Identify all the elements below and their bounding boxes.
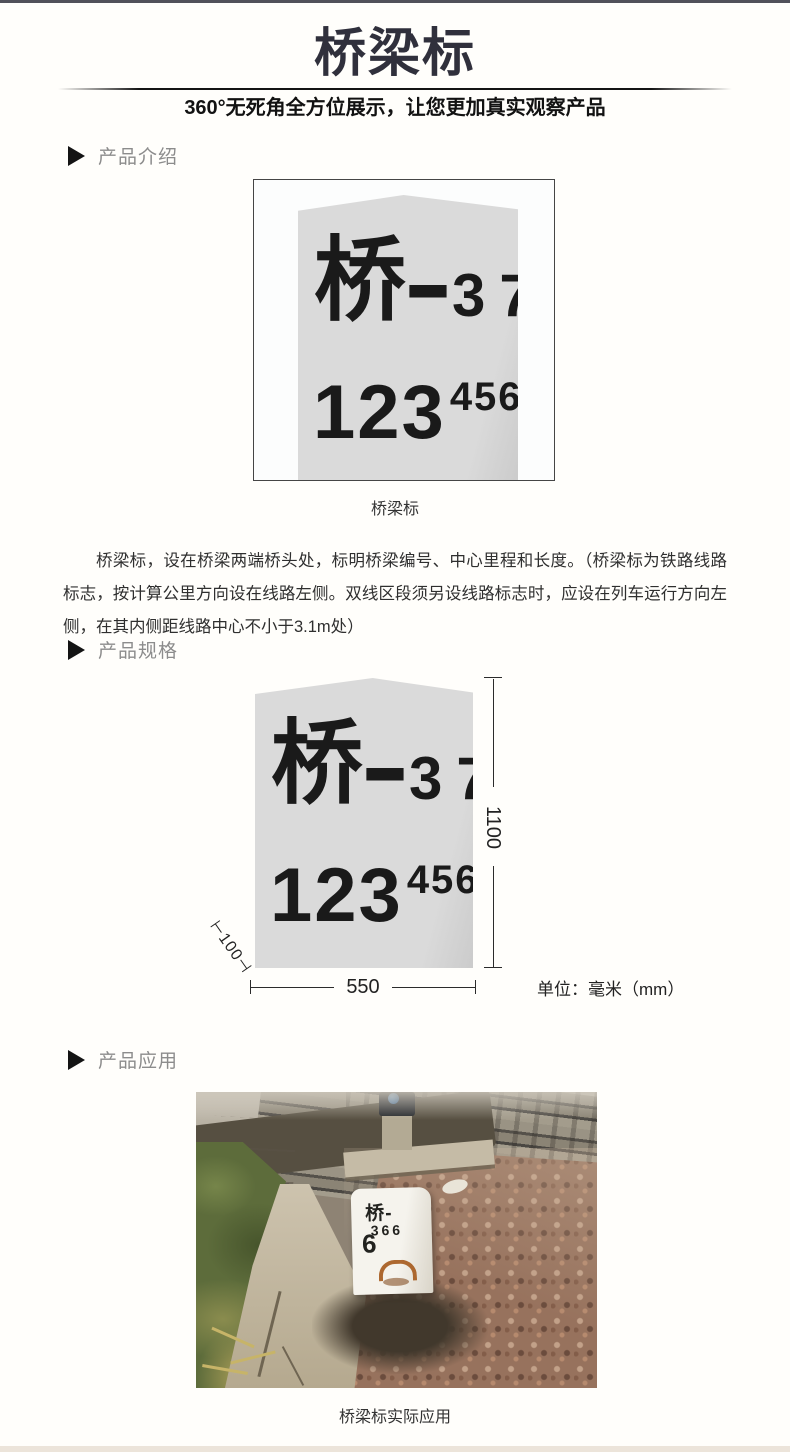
marker-mileage-sup: 456 [407,860,480,900]
triangle-bullet-icon [68,146,85,166]
marker-stone-drawing: 桥—37 123 456 [298,195,518,481]
bottom-edge-strip [0,1446,790,1452]
width-dimension: 550 [250,979,476,995]
application-photo: 桥- 6366 [196,1092,597,1388]
marker-mileage-sup: 456 [450,377,523,417]
section-header-app: 产品应用 [68,1046,178,1073]
width-dim-line-right [392,987,475,988]
triangle-bullet-icon [68,1050,85,1070]
top-edge-strip [0,0,790,3]
diagram-caption: 桥梁标 [0,495,790,519]
marker-face-row2: 123 456 [270,858,480,934]
photo-caption: 桥梁标实际应用 [0,1403,790,1427]
marker-char: 桥 [271,713,363,815]
depth-dim-label: ⊢100⊣ [194,920,268,974]
marker-dash: — [366,703,403,829]
section-label-spec: 产品规格 [98,636,178,663]
height-dim-line-upper [493,679,494,787]
spec-stone-drawing: 桥—37 123 456 [255,678,473,968]
height-dim-line-lower [493,866,494,967]
width-dim-label: 550 [334,979,391,995]
photo-marker-stone: 桥- 6366 [351,1187,434,1295]
section-label-app: 产品应用 [98,1046,178,1073]
page-title: 桥梁标 [0,24,790,84]
marker-face-row1: 桥—37 [314,235,547,327]
triangle-bullet-icon [68,640,85,660]
photo-haze-overlay [196,1092,597,1120]
page-subtitle: 360°无死角全方位展示，让您更加真实观察产品 [0,94,790,122]
marker-dash: — [409,220,446,346]
section-label-intro: 产品介绍 [98,142,178,169]
unit-label: 单位：毫米（mm） [537,975,684,1000]
title-divider [58,88,732,90]
photo-marker-text-line2: 6366 [362,1230,404,1249]
width-dim-line-left [251,987,334,988]
marker-mileage-main: 123 [270,858,403,934]
section-header-intro: 产品介绍 [68,142,178,169]
section-header-spec: 产品规格 [68,636,178,663]
marker-diagram-frame: 桥—37 123 456 [253,179,555,481]
marker-face-row2: 123 456 [313,375,523,451]
marker-mileage-main: 123 [313,375,446,451]
photo-marker-number-small: 366 [371,1222,404,1239]
photo-rust-smudge [383,1278,409,1287]
height-dim-tick-bottom [484,967,502,968]
product-description: 桥梁标，设在桥梁两端桥头处，标明桥梁编号、中心里程和长度。（桥梁标为铁路线路标志… [63,545,727,644]
height-dim-label: 1100 [468,797,518,857]
marker-char: 桥 [314,230,406,332]
width-dim-tick-right [475,980,476,994]
marker-serial: 37 [452,262,547,329]
height-dim-tick-top [484,677,502,678]
product-detail-page: 桥梁标 360°无死角全方位展示，让您更加真实观察产品 产品介绍 桥—37 12… [0,0,790,1452]
